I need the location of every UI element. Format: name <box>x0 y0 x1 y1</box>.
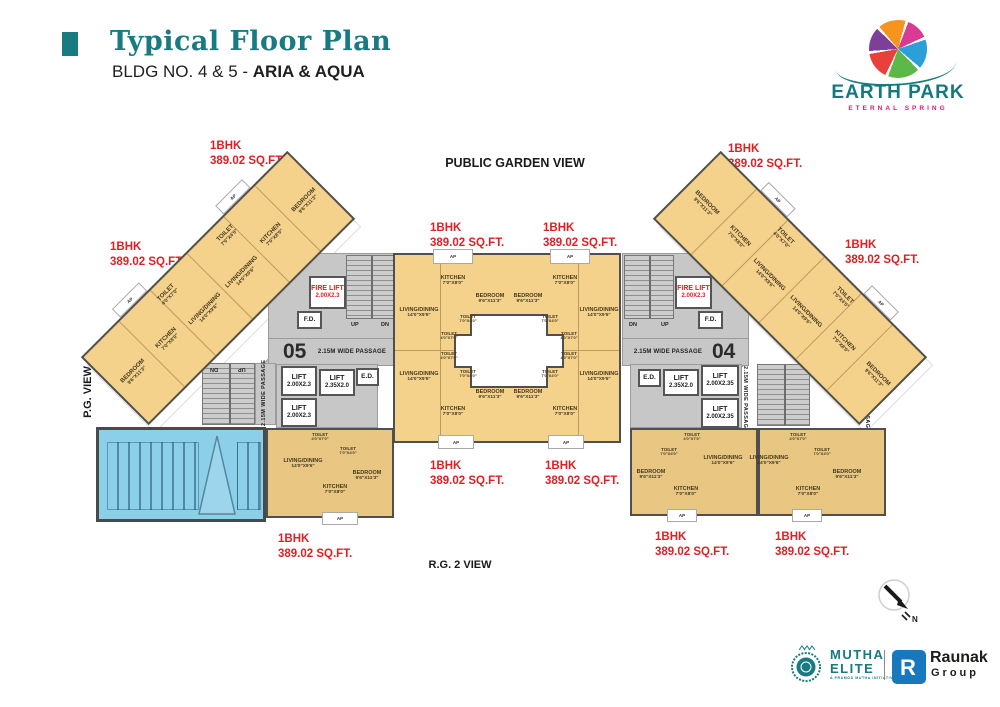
lift-label: LIFT <box>713 373 728 381</box>
room-toilet: TOILET4'0"X7'0" <box>789 432 806 442</box>
mutha-tagline: A PRAMOD MUTHA INITIATIVE <box>830 676 896 680</box>
raunak-logo-icon: R <box>892 650 926 684</box>
fire-lift-dims: 2.00X2.3 <box>681 293 705 300</box>
room-toilet: TOILET4'0"X7'0" <box>560 351 577 361</box>
room-living-dining: LIVING/DINING14'0"X9'6" <box>399 307 438 319</box>
unit-area: 389.02 SQ.FT. <box>430 474 504 489</box>
compass-north-icon: N <box>872 574 922 628</box>
footer-divider <box>884 650 885 680</box>
room-toilet: TOILET4'0"X7'0" <box>440 351 457 361</box>
room-living-dining: LIVING/DINING14'0"X9'6" <box>703 455 742 467</box>
room-bedroom: BEDROOM9'6"X11'3" <box>514 293 543 305</box>
room-dims: 7'0"X4'0" <box>339 451 356 456</box>
passage-label-vertical: 2.15M WIDE PASSAGE <box>261 366 267 426</box>
room-living-dining: LIVING/DINING14'0"X9'6" <box>784 295 823 334</box>
room-kitchen: KITCHEN7'0"X8'0" <box>259 222 287 250</box>
unit-type: 1BHK <box>210 139 284 154</box>
room-dims: 4'0"X7'0" <box>683 437 700 442</box>
room-toilet: TOILET4'0"X7'0" <box>683 432 700 442</box>
room-kitchen: KITCHEN7'0"X8'0" <box>674 486 698 498</box>
room-living-dining: LIVING/DINING14'0"X9'6" <box>188 292 227 331</box>
room-dims: 9'6"X11'3" <box>516 299 539 305</box>
electrical-duct-box: E.D. <box>356 368 379 386</box>
lift-shaft: LIFT 2.00X2.35 <box>701 365 739 396</box>
lift-shaft: LIFT 2.00X2.3 <box>281 398 317 427</box>
unit-type: 1BHK <box>278 532 352 547</box>
dn-label: DN <box>210 366 218 372</box>
up-label: UP <box>351 322 359 328</box>
room-dims: 14'0"X9'6" <box>587 377 610 383</box>
lift-label: LIFT <box>674 375 689 383</box>
balcony-ap: AP <box>322 512 358 525</box>
lift-label: LIFT <box>292 405 307 413</box>
room-dims: 9'6"X11'3" <box>835 475 858 481</box>
balcony-ap: AP <box>215 179 250 214</box>
room-bedroom: BEDROOM9'6"X11'3" <box>476 293 505 305</box>
lift-dims: 2.00X2.35 <box>706 414 733 421</box>
lift-dims: 2.00X2.35 <box>706 381 733 388</box>
passage-label: 2.15M WIDE PASSAGE <box>310 349 394 355</box>
balcony-ap: AP <box>864 285 899 320</box>
room-kitchen: KITCHEN7'0"X8'0" <box>724 225 752 253</box>
room-toilet: TOILET7'0"X4'0" <box>541 314 558 324</box>
up-label: UP <box>238 366 246 372</box>
pool-triangle <box>99 430 263 519</box>
room-dims: 14'0"X9'6" <box>711 461 734 467</box>
room-bedroom: BEDROOM9'6"X11'3" <box>353 470 382 482</box>
room-dims: 7'0"X4'0" <box>541 374 558 379</box>
fire-duct-box: F.D. <box>698 311 723 329</box>
room-dims: 4'0"X7'0" <box>789 437 806 442</box>
mutha-elite-crest-icon <box>787 644 827 686</box>
unit-area: 389.02 SQ.FT. <box>655 545 729 560</box>
fire-duct-box: F.D. <box>297 311 322 329</box>
unit-area-label: 1BHK389.02 SQ.FT. <box>430 459 504 489</box>
room-dims: 4'0"X7'0" <box>560 356 577 361</box>
room-dims: 14'0"X9'6" <box>407 313 430 319</box>
public-garden-view-label: PUBLIC GARDEN VIEW <box>405 156 625 170</box>
dn-label: DN <box>629 322 637 328</box>
room-kitchen: KITCHEN7'0"X8'0" <box>441 406 465 418</box>
room-toilet: TOILET4'0"X7'0" <box>156 283 180 307</box>
room-living-dining: LIVING/DINING14'0"X9'6" <box>399 371 438 383</box>
room-dims: 9'6"X11'3" <box>639 475 662 481</box>
fire-lift-label: FIRE LIFT <box>677 285 710 293</box>
unit-type: 1BHK <box>430 221 504 236</box>
brand-name: EARTH PARK <box>828 82 968 104</box>
room-toilet: TOILET7'0"X4'0" <box>813 447 830 457</box>
building-number-04: 04 <box>712 340 735 364</box>
page-subtitle: BLDG NO. 4 & 5 - ARIA & AQUA <box>112 62 365 82</box>
room-dims: 7'0"X8'0" <box>798 492 819 498</box>
unit-area: 389.02 SQ.FT. <box>278 547 352 562</box>
unit-area: 389.02 SQ.FT. <box>545 474 619 489</box>
staircase <box>346 255 396 319</box>
unit-area-label: 1BHK389.02 SQ.FT. <box>545 459 619 489</box>
room-dims: 7'0"X8'0" <box>555 412 576 418</box>
building-number-05: 05 <box>283 340 306 364</box>
room-dims: 7'0"X4'0" <box>459 319 476 324</box>
central-apartment-block: KITCHEN7'0"X8'0" BEDROOM9'6"X11'3" LIVIN… <box>393 253 621 443</box>
room-dims: 7'0"X8'0" <box>443 281 464 287</box>
room-living-dining: LIVING/DINING14'0"X9'6" <box>579 371 618 383</box>
room-dims: 4'0"X7'0" <box>440 336 457 341</box>
room-dims: 7'0"X4'0" <box>459 374 476 379</box>
unit-area: 389.02 SQ.FT. <box>775 545 849 560</box>
raunak-name: Raunak <box>930 650 988 666</box>
room-dims: 4'0"X7'0" <box>311 437 328 442</box>
room-bedroom: BEDROOM9'6"X11'3" <box>291 187 322 218</box>
subtitle-prefix: BLDG NO. 4 & 5 - <box>112 62 253 81</box>
fd-label: F.D. <box>304 316 316 323</box>
room-dims: 14'0"X9'6" <box>757 461 780 467</box>
room-toilet: TOILET7'0"X4'0" <box>459 314 476 324</box>
fire-lift-dims: 2.00X2.3 <box>315 293 339 300</box>
room-dims: 4'0"X7'0" <box>560 336 577 341</box>
unit-type: 1BHK <box>110 240 184 255</box>
room-toilet: TOILET7'0"X4'0" <box>339 446 356 456</box>
fire-lift-shaft: FIRE LIFT 2.00X2.3 <box>675 276 712 309</box>
balcony-ap: AP <box>550 249 590 264</box>
room-dims: 7'0"X8'0" <box>325 490 346 496</box>
lift-shaft: LIFT 2.00X2.3 <box>281 366 317 396</box>
room-dims: 4'0"X7'0" <box>440 356 457 361</box>
staircase <box>202 363 255 425</box>
room-toilet: TOILET4'0"X7'0" <box>311 432 328 442</box>
unit-type: 1BHK <box>545 459 619 474</box>
electrical-duct-box: E.D. <box>638 369 661 387</box>
room-living-dining: LIVING/DINING14'0"X9'6" <box>749 455 788 467</box>
room-toilet: TOILET4'0"X7'0" <box>560 331 577 341</box>
header-accent-square <box>62 32 78 56</box>
room-toilet: TOILET7'0"X4'0" <box>216 224 240 248</box>
lift-dims: 2.35X2.0 <box>669 383 693 390</box>
fire-lift-label: FIRE LIFT <box>311 285 344 293</box>
unit-area-label: 1BHK389.02 SQ.FT. <box>845 238 919 268</box>
unit-area: 389.02 SQ.FT. <box>845 253 919 268</box>
floor-plan-page: Typical Floor Plan BLDG NO. 4 & 5 - ARIA… <box>0 0 1000 707</box>
unit-area-label: 1BHK389.02 SQ.FT. <box>775 530 849 560</box>
staircase <box>624 255 674 319</box>
central-courtyard <box>395 255 623 445</box>
raunak-group: Group <box>931 667 979 679</box>
room-dims: 7'0"X4'0" <box>813 452 830 457</box>
lift-shaft: LIFT 2.35X2.0 <box>663 369 699 396</box>
ed-label: E.D. <box>361 373 374 380</box>
room-living-dining: LIVING/DINING14'0"X9'6" <box>225 255 264 294</box>
balcony-ap: AP <box>760 182 795 217</box>
room-dims: 7'0"X4'0" <box>660 452 677 457</box>
balcony-ap: AP <box>667 509 697 522</box>
apartment-bottom-right-2 <box>758 428 886 516</box>
earth-park-swoosh-icon <box>836 46 956 86</box>
unit-area-label: 1BHK389.02 SQ.FT. <box>430 221 504 251</box>
room-bedroom: BEDROOM9'6"X11'3" <box>120 358 151 389</box>
fd-label: F.D. <box>705 316 717 323</box>
lift-dims: 2.00X2.3 <box>287 413 311 420</box>
room-dims: 9'6"X11'3" <box>516 395 539 401</box>
room-bedroom: BEDROOM9'6"X11'3" <box>689 190 720 221</box>
lift-label: LIFT <box>713 406 728 414</box>
mutha-line1: MUTHA <box>830 648 884 662</box>
room-dims: 14'0"X9'6" <box>291 464 314 470</box>
room-dims: 9'6"X11'3" <box>478 395 501 401</box>
passage-label: 2.15M WIDE PASSAGE <box>626 349 710 355</box>
room-bedroom: BEDROOM9'6"X11'3" <box>833 469 862 481</box>
room-kitchen: KITCHEN7'0"X8'0" <box>553 406 577 418</box>
balcony-ap: AP <box>112 282 147 317</box>
balcony-ap: AP <box>548 435 584 449</box>
room-toilet: TOILET7'0"X4'0" <box>830 286 854 310</box>
room-toilet: TOILET4'0"X7'0" <box>440 331 457 341</box>
room-kitchen: KITCHEN7'0"X8'0" <box>441 275 465 287</box>
room-toilet: TOILET7'0"X4'0" <box>459 369 476 379</box>
pg-view-label: P.G. VIEW <box>82 366 94 418</box>
svg-text:R: R <box>900 655 916 680</box>
mutha-elite-logo: MUTHA ELITE <box>830 648 884 677</box>
room-living-dining: LIVING/DINING14'0"X9'6" <box>747 258 786 297</box>
room-kitchen: KITCHEN7'0"X8'0" <box>553 275 577 287</box>
room-dims: 9'6"X11'3" <box>478 299 501 305</box>
room-dims: 9'6"X11'3" <box>355 476 378 482</box>
lift-label: LIFT <box>330 375 345 383</box>
ed-label: E.D. <box>643 374 656 381</box>
lift-shaft: LIFT 2.35X2.0 <box>319 369 355 396</box>
room-kitchen: KITCHEN7'0"X8'0" <box>828 329 856 357</box>
page-title: Typical Floor Plan <box>110 26 391 57</box>
dn-label: DN <box>381 322 389 328</box>
room-dims: 14'0"X9'6" <box>587 313 610 319</box>
unit-type: 1BHK <box>655 530 729 545</box>
passage-label-vertical: 2.15M WIDE PASSAGE <box>742 366 748 426</box>
unit-area-label: 1BHK389.02 SQ.FT. <box>543 221 617 251</box>
room-dims: 7'0"X8'0" <box>443 412 464 418</box>
unit-type: 1BHK <box>845 238 919 253</box>
unit-area-label: 1BHK389.02 SQ.FT. <box>655 530 729 560</box>
room-kitchen: KITCHEN7'0"X8'0" <box>796 486 820 498</box>
subtitle-bold: ARIA & AQUA <box>253 62 365 81</box>
unit-type: 1BHK <box>543 221 617 236</box>
room-kitchen: KITCHEN7'0"X8'0" <box>323 484 347 496</box>
room-dims: 7'0"X8'0" <box>676 492 697 498</box>
unit-type: 1BHK <box>728 142 802 157</box>
room-living-dining: LIVING/DINING14'0"X9'6" <box>283 458 322 470</box>
rg2-view-label: R.G. 2 VIEW <box>395 559 525 571</box>
room-bedroom: BEDROOM9'6"X11'3" <box>637 469 666 481</box>
room-toilet: TOILET4'0"X7'0" <box>771 226 795 250</box>
pool-deck <box>96 427 266 522</box>
lift-dims: 2.00X2.3 <box>287 382 311 389</box>
room-bedroom: BEDROOM9'6"X11'3" <box>860 361 891 392</box>
lift-label: LIFT <box>292 374 307 382</box>
balcony-ap: AP <box>438 435 474 449</box>
room-dims: 7'0"X4'0" <box>541 319 558 324</box>
lift-shaft: LIFT 2.00X2.35 <box>701 398 739 428</box>
room-toilet: TOILET7'0"X4'0" <box>541 369 558 379</box>
unit-area-label: 1BHK389.02 SQ.FT. <box>278 532 352 562</box>
room-bedroom: BEDROOM9'6"X11'3" <box>476 389 505 401</box>
unit-type: 1BHK <box>430 459 504 474</box>
staircase <box>757 364 810 426</box>
lift-dims: 2.35X2.0 <box>325 383 349 390</box>
unit-type: 1BHK <box>775 530 849 545</box>
unit-area-label: 1BHK389.02 SQ.FT. <box>728 142 802 172</box>
compass-n-label: N <box>912 615 918 624</box>
balcony-ap: AP <box>792 509 822 522</box>
mutha-line2: ELITE <box>830 662 884 676</box>
room-bedroom: BEDROOM9'6"X11'3" <box>514 389 543 401</box>
room-dims: 7'0"X8'0" <box>555 281 576 287</box>
brand-tagline: ETERNAL SPRING <box>828 105 968 112</box>
room-kitchen: KITCHEN7'0"X8'0" <box>155 326 183 354</box>
balcony-ap: AP <box>433 249 473 264</box>
fire-lift-shaft: FIRE LIFT 2.00X2.3 <box>309 276 346 309</box>
up-label: UP <box>661 322 669 328</box>
room-toilet: TOILET7'0"X4'0" <box>660 447 677 457</box>
room-living-dining: LIVING/DINING14'0"X9'6" <box>579 307 618 319</box>
room-dims: 14'0"X9'6" <box>407 377 430 383</box>
